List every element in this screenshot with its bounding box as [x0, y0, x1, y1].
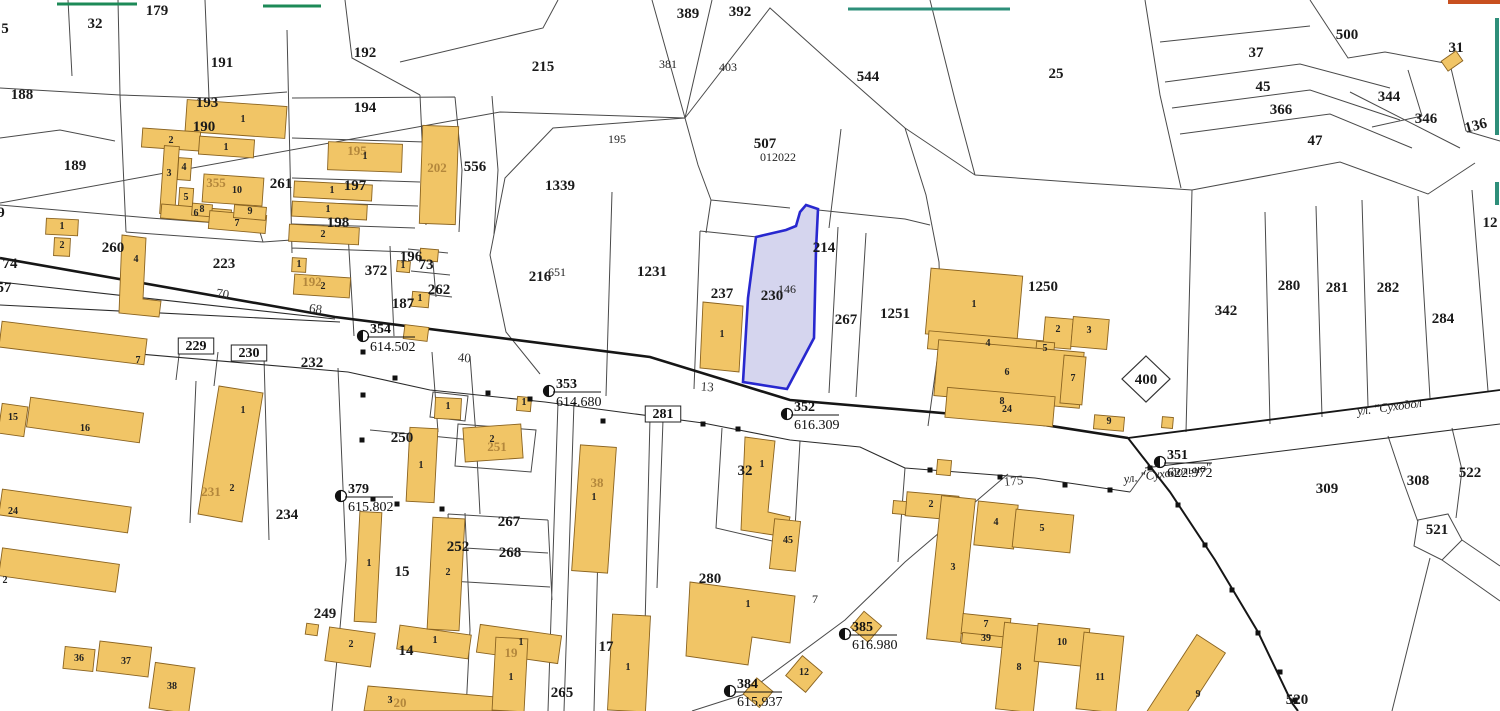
- road-label: 70: [215, 285, 230, 302]
- parcel-label-faded: 20: [394, 695, 407, 710]
- parcel-label-faded: 202: [427, 160, 447, 175]
- benchmark-id: 384: [737, 677, 758, 692]
- building-number: 2: [230, 483, 235, 494]
- road-label: 68: [308, 300, 323, 317]
- building-number: 2: [929, 499, 934, 510]
- parcel-label: 192: [354, 45, 377, 61]
- parcel-label: 15: [395, 564, 410, 580]
- parcel-label: 25: [1049, 66, 1064, 82]
- building-number: 11: [1095, 672, 1104, 683]
- parcel-label: 190: [193, 119, 216, 135]
- parcel-label: 1250: [1028, 279, 1058, 295]
- parcel-label: 32: [88, 16, 103, 32]
- parcel-label-small: 146: [778, 282, 796, 296]
- parcel-label: 342: [1215, 303, 1238, 319]
- parcel-label-faded: 355: [206, 175, 226, 190]
- benchmark-id: 351: [1167, 448, 1188, 463]
- building-number: 1: [326, 204, 331, 215]
- benchmark-id: 354: [370, 322, 391, 337]
- building-number: 1: [401, 260, 406, 271]
- parcel-label-small: 7: [812, 592, 818, 606]
- building-number: 1: [522, 397, 527, 408]
- benchmark-elevation: 614.502: [370, 340, 416, 355]
- parcel-label: 309: [1316, 481, 1339, 497]
- parcel-label: 268: [499, 545, 522, 561]
- building-number: 4: [994, 517, 999, 528]
- parcel-label: 234: [276, 507, 299, 523]
- building-number: 1: [972, 299, 977, 310]
- parcel-label: 267: [498, 514, 521, 530]
- parcel-label: 237: [711, 286, 734, 302]
- parcel-label: 232: [301, 355, 324, 371]
- parcel-label: 188: [11, 87, 34, 103]
- building-number: 3: [951, 562, 956, 573]
- map-canvas[interactable]: 229230281 532179188191192193190194189215…: [0, 0, 1500, 711]
- parcel-label: 500: [1336, 27, 1359, 43]
- parcel-label: 520: [1286, 692, 1309, 708]
- benchmark-id: 385: [852, 620, 873, 635]
- parcel-label: 346: [1415, 111, 1438, 127]
- parcel-label: 400: [1135, 372, 1158, 388]
- parcel-label: 215: [532, 59, 555, 75]
- parcel-label: 74: [3, 256, 19, 272]
- building-number: 1: [509, 672, 514, 683]
- parcel-label: 73: [419, 257, 434, 273]
- benchmark-elevation: 614.680: [556, 395, 602, 410]
- building-number: 9: [1196, 689, 1201, 700]
- parcel-label: 193: [196, 95, 219, 111]
- parcel-label: 9: [0, 205, 5, 221]
- parcel-label: 366: [1270, 102, 1293, 118]
- parcel-label: 191: [211, 55, 234, 71]
- building-number: 2: [446, 567, 451, 578]
- building-number: 24: [8, 506, 18, 517]
- parcel-label: 556: [464, 159, 487, 175]
- cadastral-map[interactable]: 229230281 532179188191192193190194189215…: [0, 0, 1500, 711]
- parcel-label: 392: [729, 4, 752, 20]
- building-number: 2: [490, 434, 495, 445]
- building-number: 2: [349, 639, 354, 650]
- parcel-label: 198: [327, 215, 350, 231]
- building-number: 6: [1005, 367, 1010, 378]
- parcel-label: 280: [699, 571, 722, 587]
- building-number: 1: [519, 637, 524, 648]
- parcel-label: 522: [1459, 465, 1482, 481]
- building-number: 1: [363, 151, 368, 162]
- building-number: 8: [1017, 662, 1022, 673]
- parcel-label: 189: [64, 158, 87, 174]
- building-number: 5: [1043, 343, 1048, 354]
- street-name-label: ул. "Суходол: [1354, 396, 1423, 419]
- building-number: 12: [799, 667, 809, 678]
- building-number: 1: [592, 492, 597, 503]
- parcel-label-small: 381: [659, 57, 677, 71]
- building-number: 37: [121, 656, 131, 667]
- building-number: 36: [74, 653, 84, 664]
- parcel-label: 249: [314, 606, 337, 622]
- building-number: 1: [330, 185, 335, 196]
- building-number: 2: [321, 281, 326, 292]
- parcel-label: 308: [1407, 473, 1430, 489]
- building-number: 1: [626, 662, 631, 673]
- parcel-label-small: 403: [719, 60, 737, 74]
- parcel-label: 45: [1256, 79, 1271, 95]
- road-label: 175: [1003, 472, 1024, 489]
- building-number: 4: [134, 254, 139, 265]
- building-number: 45: [783, 535, 793, 546]
- building-number: 5: [1040, 523, 1045, 534]
- building-number: 4: [182, 162, 187, 173]
- parcel-label: 37: [1249, 45, 1265, 61]
- parcel-label: 521: [1426, 522, 1449, 538]
- benchmark-elevation: 615.937: [737, 695, 783, 710]
- parcel-label: 1339: [545, 178, 575, 194]
- building-number: 38: [167, 681, 177, 692]
- building-number: 1: [418, 293, 423, 304]
- parcel-label: 32: [738, 463, 753, 479]
- parcel-label: 57: [0, 280, 12, 296]
- parcel-label: 47: [1308, 133, 1324, 149]
- building-number: 3: [388, 695, 393, 706]
- parcel-label-faded: 38: [591, 475, 605, 490]
- building-number: 1: [446, 401, 451, 412]
- parcel-label: 14: [399, 643, 415, 659]
- benchmark-elevation: 622.972: [1167, 466, 1213, 481]
- parcel-label-small: 651: [548, 265, 566, 279]
- boxed-parcel-label: 281: [653, 407, 674, 422]
- building-number: 10: [232, 185, 242, 196]
- parcel-label: 280: [1278, 278, 1301, 294]
- building-number: 2: [60, 240, 65, 251]
- parcel-label: 344: [1378, 89, 1401, 105]
- boxed-parcel-label: 229: [186, 339, 207, 354]
- building-number: 9: [1107, 416, 1112, 427]
- parcel-label: 267: [835, 312, 858, 328]
- parcel-label-faded: 19: [505, 645, 519, 660]
- building-number: 1: [760, 459, 765, 470]
- building-number: 24: [1002, 404, 1012, 415]
- building-number: 1: [433, 635, 438, 646]
- parcel-label: 281: [1326, 280, 1349, 296]
- survey-point-352: 352616.309: [782, 400, 840, 433]
- building-number: 1: [241, 405, 246, 416]
- building-number: 7: [136, 355, 141, 366]
- parcel-label: 265: [551, 685, 574, 701]
- building-number: 2: [321, 229, 326, 240]
- parcel-label: 187: [392, 296, 415, 312]
- building-number: 7: [1071, 373, 1076, 384]
- parcel-label-faded: 231: [201, 484, 221, 499]
- benchmark-id: 352: [794, 400, 815, 415]
- building-number: 1: [419, 460, 424, 471]
- building-number: 6: [194, 208, 199, 219]
- building-number: 2: [169, 135, 174, 146]
- building-number: 1: [367, 558, 372, 569]
- building-number: 2: [3, 575, 8, 586]
- building-number: 4: [986, 338, 991, 349]
- parcel-label: 389: [677, 6, 700, 22]
- building-number: 1: [720, 329, 725, 340]
- building-number: 3: [167, 168, 172, 179]
- boxed-parcel-label: 230: [239, 346, 260, 361]
- building-number: 16: [80, 423, 90, 434]
- parcel-label: 260: [102, 240, 125, 256]
- building-number: 8: [200, 204, 205, 215]
- parcel-label: 544: [857, 69, 880, 85]
- parcel-label-small: 195: [608, 132, 626, 146]
- road-label: 40: [457, 349, 471, 365]
- road-label: 13: [700, 379, 714, 395]
- building-number: 2: [1056, 324, 1061, 335]
- parcel-label: 214: [813, 240, 836, 256]
- parcel-label: 223: [213, 256, 236, 272]
- benchmark-id: 353: [556, 377, 577, 392]
- parcel-label: 136: [1463, 115, 1489, 136]
- parcel-label: 284: [1432, 311, 1455, 327]
- parcel-label: 17: [599, 639, 615, 655]
- parcel-label: 372: [365, 263, 388, 279]
- building-number: 10: [1057, 637, 1067, 648]
- parcel-label: 194: [354, 100, 377, 116]
- building-number: 1: [297, 259, 302, 270]
- benchmark-elevation: 616.309: [794, 418, 840, 433]
- parcel-label: 197: [344, 178, 367, 194]
- building-number: 15: [8, 412, 18, 423]
- building-number: 1: [224, 142, 229, 153]
- building-number: 3: [1087, 325, 1092, 336]
- benchmark-elevation: 616.980: [852, 638, 898, 653]
- parcel-label: 252: [447, 539, 470, 555]
- building-number: 7: [235, 218, 240, 229]
- parcel-label: 1231: [637, 264, 667, 280]
- building-number: 1: [746, 599, 751, 610]
- benchmark-id: 379: [348, 482, 369, 497]
- building-number: 7: [984, 619, 989, 630]
- building-number: 1: [241, 114, 246, 125]
- parcel-label: 261: [270, 176, 293, 192]
- parcel-label: 5: [1, 21, 9, 37]
- benchmark-elevation: 615.802: [348, 500, 394, 515]
- parcel-label: 12: [1483, 215, 1498, 231]
- parcel-label: 250: [391, 430, 414, 446]
- parcel-label: 262: [428, 282, 451, 298]
- building-number: 1: [60, 221, 65, 232]
- survey-point-353: 353614.680: [544, 377, 602, 410]
- parcel-label-faded: 192: [302, 274, 322, 289]
- parcel-label: 31: [1449, 40, 1464, 56]
- parcel-label: 1251: [880, 306, 910, 322]
- parcel-label-small: 012022: [760, 150, 796, 164]
- building-number: 5: [184, 192, 189, 203]
- parcel-label: 282: [1377, 280, 1400, 296]
- building-number: 39: [981, 633, 991, 644]
- building-number: 9: [248, 206, 253, 217]
- parcel-label: 179: [146, 3, 169, 19]
